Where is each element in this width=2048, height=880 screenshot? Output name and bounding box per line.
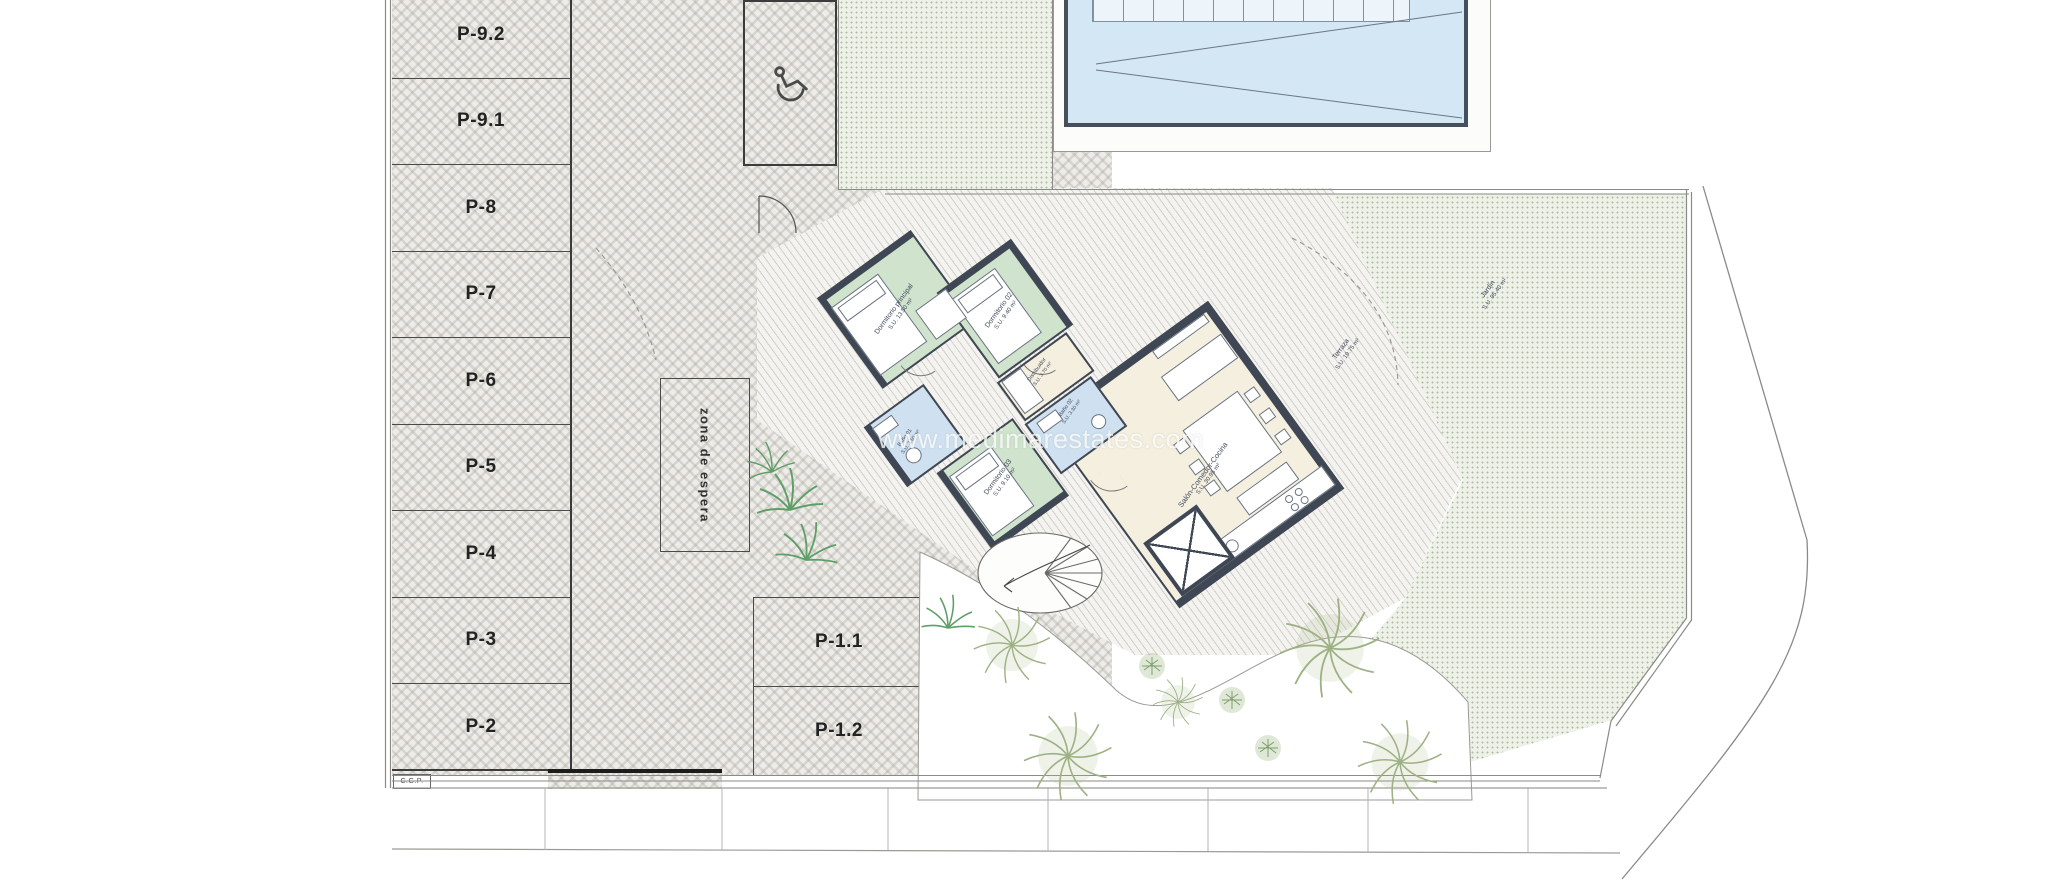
stall-label: P-6 xyxy=(465,370,496,392)
parking-stall: P-5 xyxy=(392,425,570,512)
stall-label: P-9.1 xyxy=(457,110,505,132)
parking-stall: P-6 xyxy=(392,338,570,425)
bush-icon xyxy=(1139,653,1165,679)
stall-label: P-9.2 xyxy=(457,24,505,46)
utility-box-label: C.G.P. xyxy=(400,778,423,785)
parking-stall: P-1.2 xyxy=(754,687,924,776)
palm-tree-icon xyxy=(1153,677,1203,726)
parking-stall: P-1.1 xyxy=(754,598,924,687)
parking-stall: P-4 xyxy=(392,511,570,598)
site-plan: P-9.2 P-9.1 P-8 P-7 P-6 P-5 P-4 P-3 P-2 … xyxy=(0,0,2048,880)
parking-stall: P-2 xyxy=(392,684,570,771)
pool-steps xyxy=(1092,0,1410,22)
stall-label: P-1.1 xyxy=(815,631,863,653)
bush-icon xyxy=(1255,735,1281,761)
stall-label: P-7 xyxy=(465,283,496,305)
stall-label: P-1.2 xyxy=(815,720,863,742)
parking-stall: P-9.1 xyxy=(392,79,570,166)
parking-stall: P-3 xyxy=(392,598,570,685)
stall-label: P-3 xyxy=(465,629,496,651)
sidewalk xyxy=(392,788,1607,848)
waiting-zone: zona de espera xyxy=(660,378,750,552)
accessible-parking-stall xyxy=(743,0,837,166)
parking-stall: P-7 xyxy=(392,252,570,339)
stall-label: P-4 xyxy=(465,543,496,565)
utility-box: C.G.P. xyxy=(393,774,431,789)
vehicle-entrance xyxy=(548,775,722,789)
parking-stall: P-8 xyxy=(392,165,570,252)
stall-label: P-8 xyxy=(465,197,496,219)
stall-label: P-5 xyxy=(465,456,496,478)
parking-column: P-9.2 P-9.1 P-8 P-7 P-6 P-5 P-4 P-3 P-2 xyxy=(392,0,572,771)
waiting-zone-label: zona de espera xyxy=(698,408,713,523)
stall-label: P-2 xyxy=(465,716,496,738)
watermark: www.medimarestates.com xyxy=(878,424,1204,455)
garden-square xyxy=(838,0,1053,190)
parking-island: P-1.1 P-1.2 xyxy=(753,597,925,776)
bush-icon xyxy=(1219,687,1245,713)
parking-stall: P-9.2 xyxy=(392,0,570,79)
wheelchair-icon xyxy=(763,55,818,112)
